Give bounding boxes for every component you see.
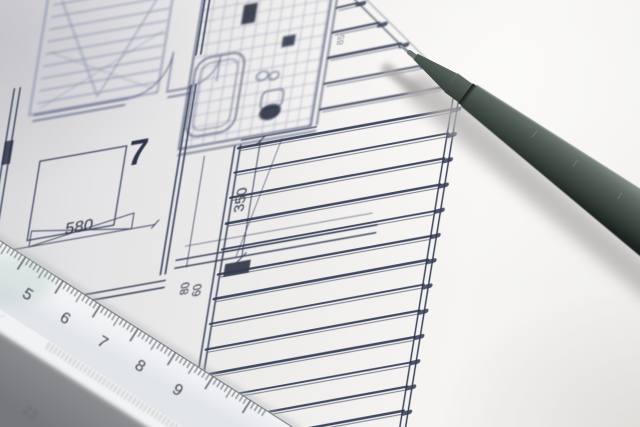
paper-vignette-bottomright xyxy=(0,0,640,427)
photo-architectural-plan: 580 7 350 80 60 85 xyxy=(0,0,640,427)
